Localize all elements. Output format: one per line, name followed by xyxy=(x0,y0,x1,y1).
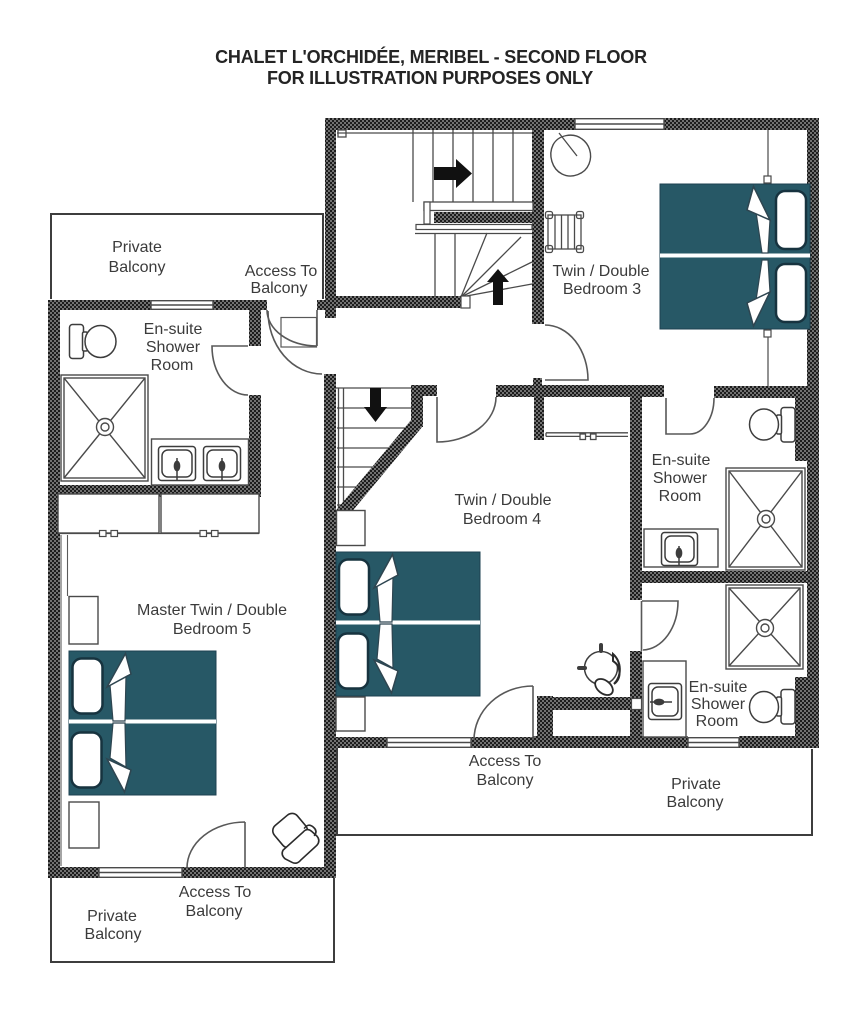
svg-text:Balcony: Balcony xyxy=(85,926,142,943)
svg-text:Access To: Access To xyxy=(245,263,318,280)
svg-text:Shower: Shower xyxy=(653,470,708,487)
svg-text:Shower: Shower xyxy=(691,696,746,713)
svg-text:En-suite: En-suite xyxy=(689,679,748,696)
svg-text:En-suite: En-suite xyxy=(144,321,203,338)
svg-text:Bedroom 3: Bedroom 3 xyxy=(563,281,641,298)
svg-text:Bedroom 5: Bedroom 5 xyxy=(173,621,251,638)
svg-text:Private: Private xyxy=(671,776,721,793)
svg-text:CHALET L'ORCHIDÉE, MERIBEL - S: CHALET L'ORCHIDÉE, MERIBEL - SECOND FLOO… xyxy=(215,46,647,67)
svg-text:Balcony: Balcony xyxy=(251,280,308,297)
svg-text:Twin / Double: Twin / Double xyxy=(553,263,650,280)
svg-text:Twin / Double: Twin / Double xyxy=(455,492,552,509)
svg-text:Room: Room xyxy=(659,488,702,505)
svg-text:Shower: Shower xyxy=(146,339,201,356)
svg-text:Private: Private xyxy=(112,239,162,256)
svg-text:En-suite: En-suite xyxy=(652,452,711,469)
svg-text:Access To: Access To xyxy=(179,884,252,901)
svg-text:Room: Room xyxy=(696,713,739,730)
svg-text:Room: Room xyxy=(151,357,194,374)
svg-text:Access To: Access To xyxy=(469,753,542,770)
svg-text:Master Twin / Double: Master Twin / Double xyxy=(137,602,287,619)
svg-text:FOR ILLUSTRATION PURPOSES ONLY: FOR ILLUSTRATION PURPOSES ONLY xyxy=(267,68,593,88)
svg-text:Balcony: Balcony xyxy=(477,772,534,789)
svg-text:Balcony: Balcony xyxy=(109,259,166,276)
svg-text:Private: Private xyxy=(87,908,137,925)
svg-text:Bedroom 4: Bedroom 4 xyxy=(463,511,541,528)
svg-text:Balcony: Balcony xyxy=(186,903,243,920)
svg-text:Balcony: Balcony xyxy=(667,794,724,811)
